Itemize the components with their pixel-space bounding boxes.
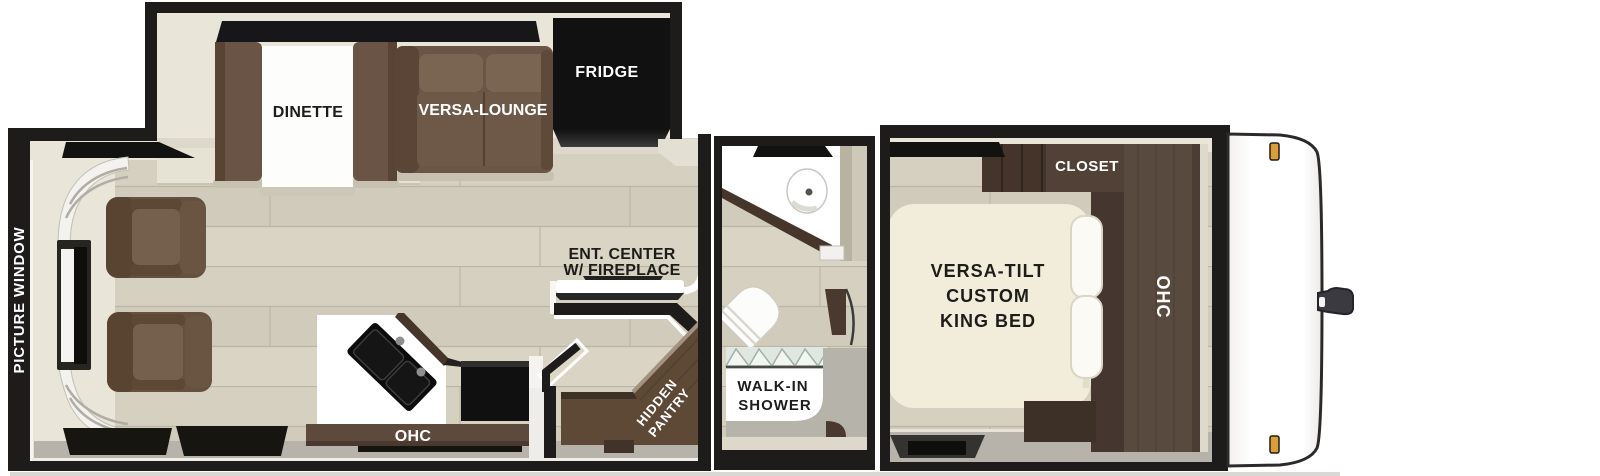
svg-text:FRIDGE: FRIDGE [575,64,638,81]
svg-text:VERSA-LOUNGE: VERSA-LOUNGE [419,102,548,119]
svg-text:DINETTE: DINETTE [273,104,344,121]
svg-text:CUSTOM: CUSTOM [946,286,1030,306]
svg-text:SHOWER: SHOWER [738,397,812,414]
svg-text:PICTURE WINDOW: PICTURE WINDOW [11,226,28,373]
svg-text:CLOSET: CLOSET [1055,158,1119,175]
svg-text:ENT. CENTER: ENT. CENTER [568,246,675,263]
svg-text:WALK-IN: WALK-IN [737,378,808,395]
svg-text:OHC: OHC [1153,276,1173,319]
svg-text:OHC: OHC [395,428,432,445]
svg-text:VERSA-TILT: VERSA-TILT [931,261,1046,281]
svg-text:KING BED: KING BED [940,311,1036,331]
